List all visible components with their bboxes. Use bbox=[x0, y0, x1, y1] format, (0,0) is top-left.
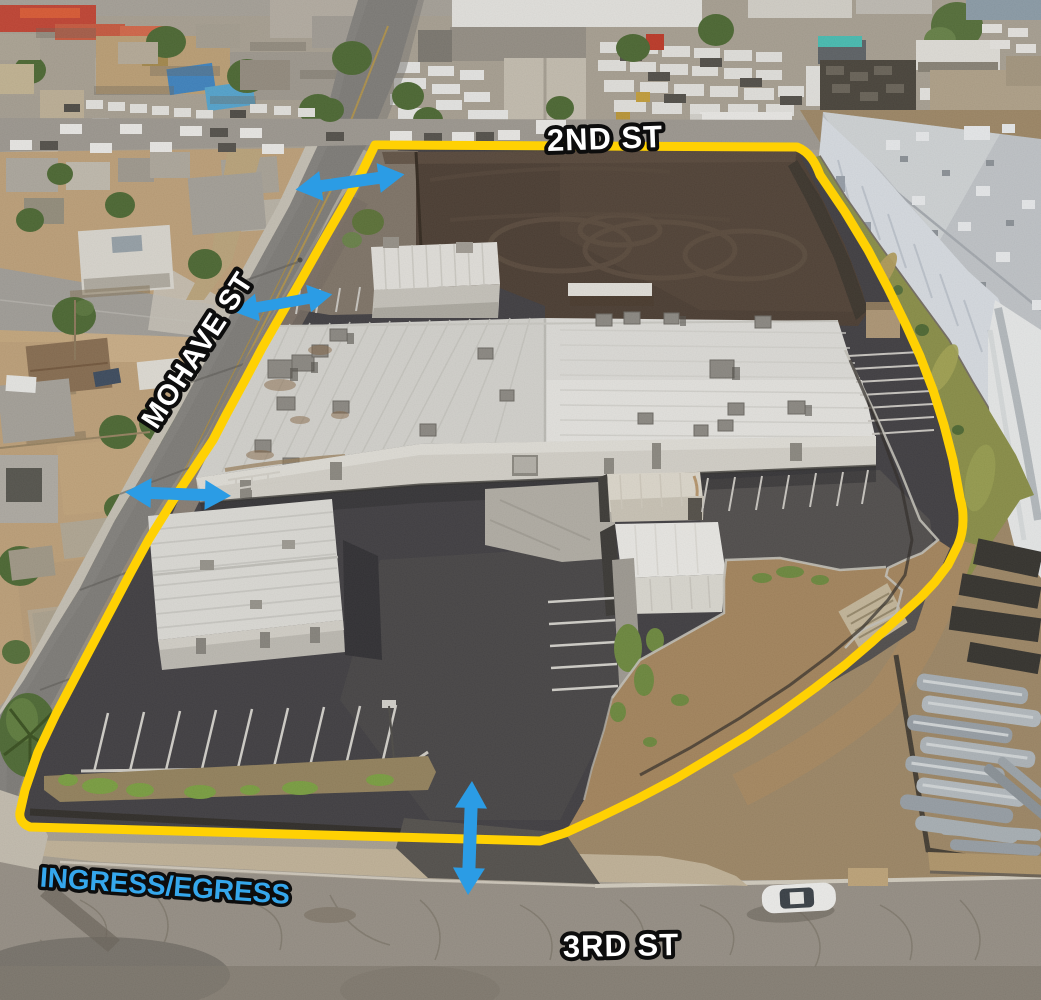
svg-text:3RD ST: 3RD ST bbox=[563, 927, 680, 964]
svg-text:2ND ST: 2ND ST bbox=[546, 119, 663, 158]
